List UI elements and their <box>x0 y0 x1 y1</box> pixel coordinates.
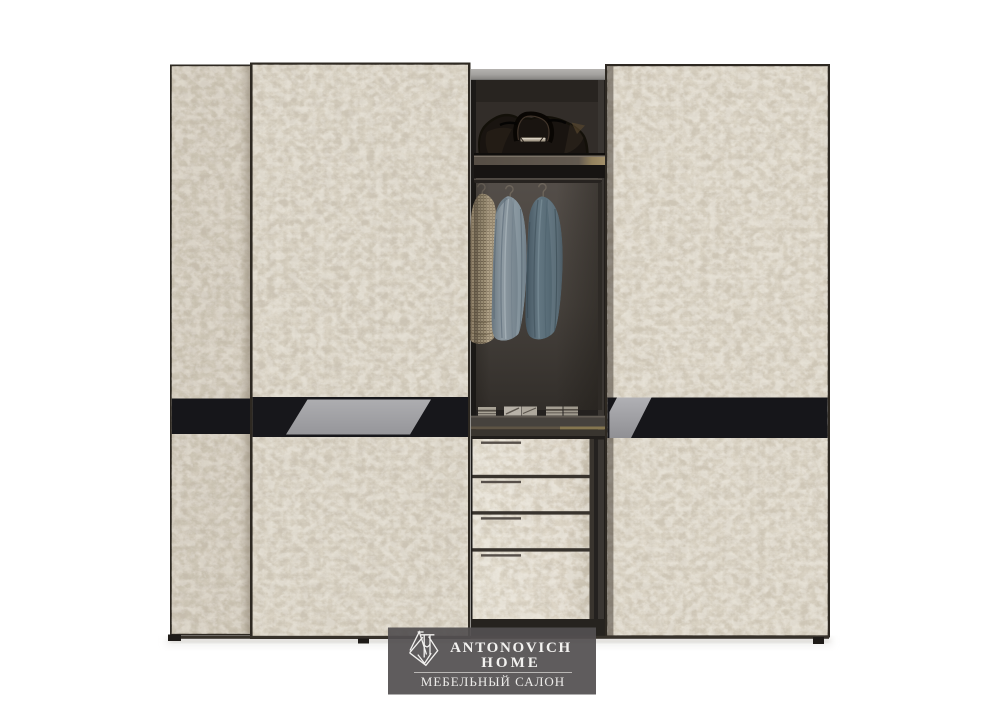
svg-text:ANTONOVICH: ANTONOVICH <box>450 640 572 656</box>
svg-text:HOME: HOME <box>481 655 541 671</box>
svg-text:МЕБЕЛЬНЫЙ САЛОН: МЕБЕЛЬНЫЙ САЛОН <box>421 674 565 689</box>
